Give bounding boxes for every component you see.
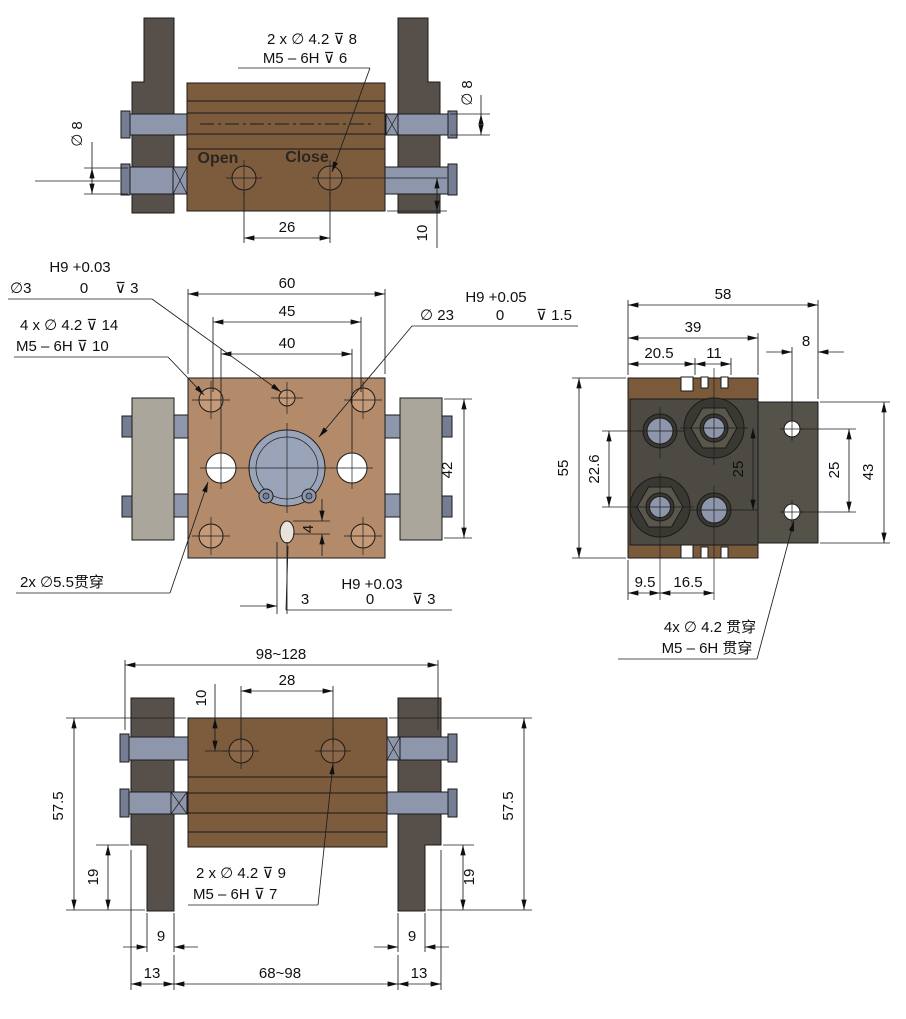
dim-57_5-left: 57.5 <box>50 791 67 820</box>
drawing-canvas: Open Close 2 x ∅ 4.2 ⊽ 8 M5 – 6H ⊽ 6 26 … <box>0 0 906 1019</box>
dim-dia8-right: ∅ 8 <box>459 80 476 106</box>
plate-notch <box>701 547 708 558</box>
port-label-close: Close <box>285 149 329 166</box>
dim-39: 39 <box>685 319 702 336</box>
port-label-open: Open <box>198 150 239 167</box>
rod-cap <box>442 416 452 437</box>
guide-rod <box>174 494 188 517</box>
front-view: 60 45 40 42 H9 +0.03 ∅3 0 ⊽ 3 4 x ∅ 4.2 … <box>8 259 578 614</box>
dim-57_5-right: 57.5 <box>500 791 517 820</box>
guide-rod <box>385 415 400 438</box>
dim-13-right: 13 <box>411 965 428 982</box>
rod-cap <box>121 164 130 195</box>
guide-rod <box>129 737 188 760</box>
callout-bore-tol: H9 +0.05 <box>465 289 526 306</box>
callout-bore-zero: 0 <box>496 307 504 324</box>
callout-dowel-depth: ⊽ 3 <box>115 280 139 297</box>
plate-notch <box>681 377 693 391</box>
rod-cap <box>121 111 130 138</box>
dim-26: 26 <box>279 219 296 236</box>
callout-slot-zero: 0 <box>366 591 374 608</box>
callout-dowel-tol: H9 +0.03 <box>49 259 110 276</box>
rod-cap <box>122 496 132 517</box>
guide-rod <box>385 167 448 194</box>
dim-4: 4 <box>300 525 317 533</box>
dim-60: 60 <box>279 275 296 292</box>
dim-20_5: 20.5 <box>644 345 673 362</box>
callout-through-holes: 2x ∅5.5贯穿 <box>20 574 104 591</box>
callout-corner-line2: M5 – 6H ⊽ 10 <box>16 338 109 355</box>
callout-top-thread: M5 – 6H ⊽ 6 <box>263 50 347 67</box>
rod-cap <box>448 789 457 817</box>
guide-rod <box>398 114 448 135</box>
callout-dowel-dia: ∅3 <box>10 280 31 297</box>
dim-9-left: 9 <box>157 928 165 945</box>
dim-43: 43 <box>860 464 877 481</box>
rod-cap <box>442 496 452 517</box>
callout-dowel-zero: 0 <box>80 280 88 297</box>
dim-68-98: 68~98 <box>259 965 301 982</box>
gripper-body <box>188 718 387 847</box>
dim-40: 40 <box>279 335 296 352</box>
callout-bottom-line1: 2 x ∅ 4.2 ⊽ 9 <box>196 865 286 882</box>
leader-line <box>168 357 204 395</box>
side-view: 58 39 20.5 11 8 55 22.6 25 25 43 9.5 <box>555 286 890 659</box>
dim-42: 42 <box>439 462 456 479</box>
guide-rod <box>387 792 448 814</box>
technical-drawing-page: Open Close 2 x ∅ 4.2 ⊽ 8 M5 – 6H ⊽ 6 26 … <box>0 0 906 1019</box>
dim-16_5: 16.5 <box>673 574 702 591</box>
callout-side-line2: M5 – 6H 贯穿 <box>662 640 753 657</box>
bottom-view: 98~128 28 10 57.5 57.5 19 19 9 9 <box>50 646 532 990</box>
callout-side-line1: 4x ∅ 4.2 贯穿 <box>664 619 756 636</box>
dim-22_6: 22.6 <box>586 454 603 483</box>
callout-slot-size: 3 <box>301 591 309 608</box>
finger-block-right <box>400 398 442 540</box>
plate-notch <box>701 377 708 388</box>
dim-98-128: 98~128 <box>256 646 306 663</box>
callout-corner-line1: 4 x ∅ 4.2 ⊽ 14 <box>20 317 118 334</box>
dim-9-right: 9 <box>408 928 416 945</box>
plate-notch <box>721 377 728 388</box>
dim-8: 8 <box>802 333 810 350</box>
callout-bore-depth: ⊽ 1.5 <box>536 307 572 324</box>
dim-28: 28 <box>279 672 296 689</box>
callout-top-hole: 2 x ∅ 4.2 ⊽ 8 <box>267 31 357 48</box>
top-view: Open Close 2 x ∅ 4.2 ⊽ 8 M5 – 6H ⊽ 6 26 … <box>35 18 490 248</box>
rod-cap <box>448 734 457 762</box>
callout-slot-depth: ⊽ 3 <box>412 591 436 608</box>
rod-cap <box>122 416 132 437</box>
dim-25-inner: 25 <box>730 461 747 478</box>
callout-bore-dia: ∅ 23 <box>420 307 454 324</box>
rod-cap <box>120 734 129 762</box>
dim-19-left: 19 <box>85 869 102 886</box>
dim-58: 58 <box>715 286 732 303</box>
rod-cap <box>448 164 457 195</box>
finger-block-left <box>132 398 174 540</box>
dim-55: 55 <box>555 460 572 477</box>
dim-11: 11 <box>706 345 722 362</box>
dim-9_5: 9.5 <box>635 574 656 591</box>
callout-bottom-line2: M5 – 6H ⊽ 7 <box>193 886 277 903</box>
plate-notch <box>721 547 728 558</box>
dim-dia8-left: ∅ 8 <box>69 121 86 147</box>
dim-10: 10 <box>414 225 431 242</box>
dim-13-left: 13 <box>144 965 161 982</box>
dim-10-bottom: 10 <box>193 690 210 707</box>
guide-rod <box>130 114 188 135</box>
guide-rod <box>385 494 400 517</box>
dim-45: 45 <box>279 303 296 320</box>
key-slot <box>280 521 294 543</box>
plate-notch <box>681 544 693 558</box>
guide-rod <box>174 415 188 438</box>
rod-cap <box>120 789 129 817</box>
guide-rod <box>400 737 448 760</box>
gripper-body <box>187 83 385 211</box>
dim-25-plate: 25 <box>826 462 843 479</box>
dim-19-right: 19 <box>461 869 478 886</box>
rod-cap <box>448 111 457 138</box>
